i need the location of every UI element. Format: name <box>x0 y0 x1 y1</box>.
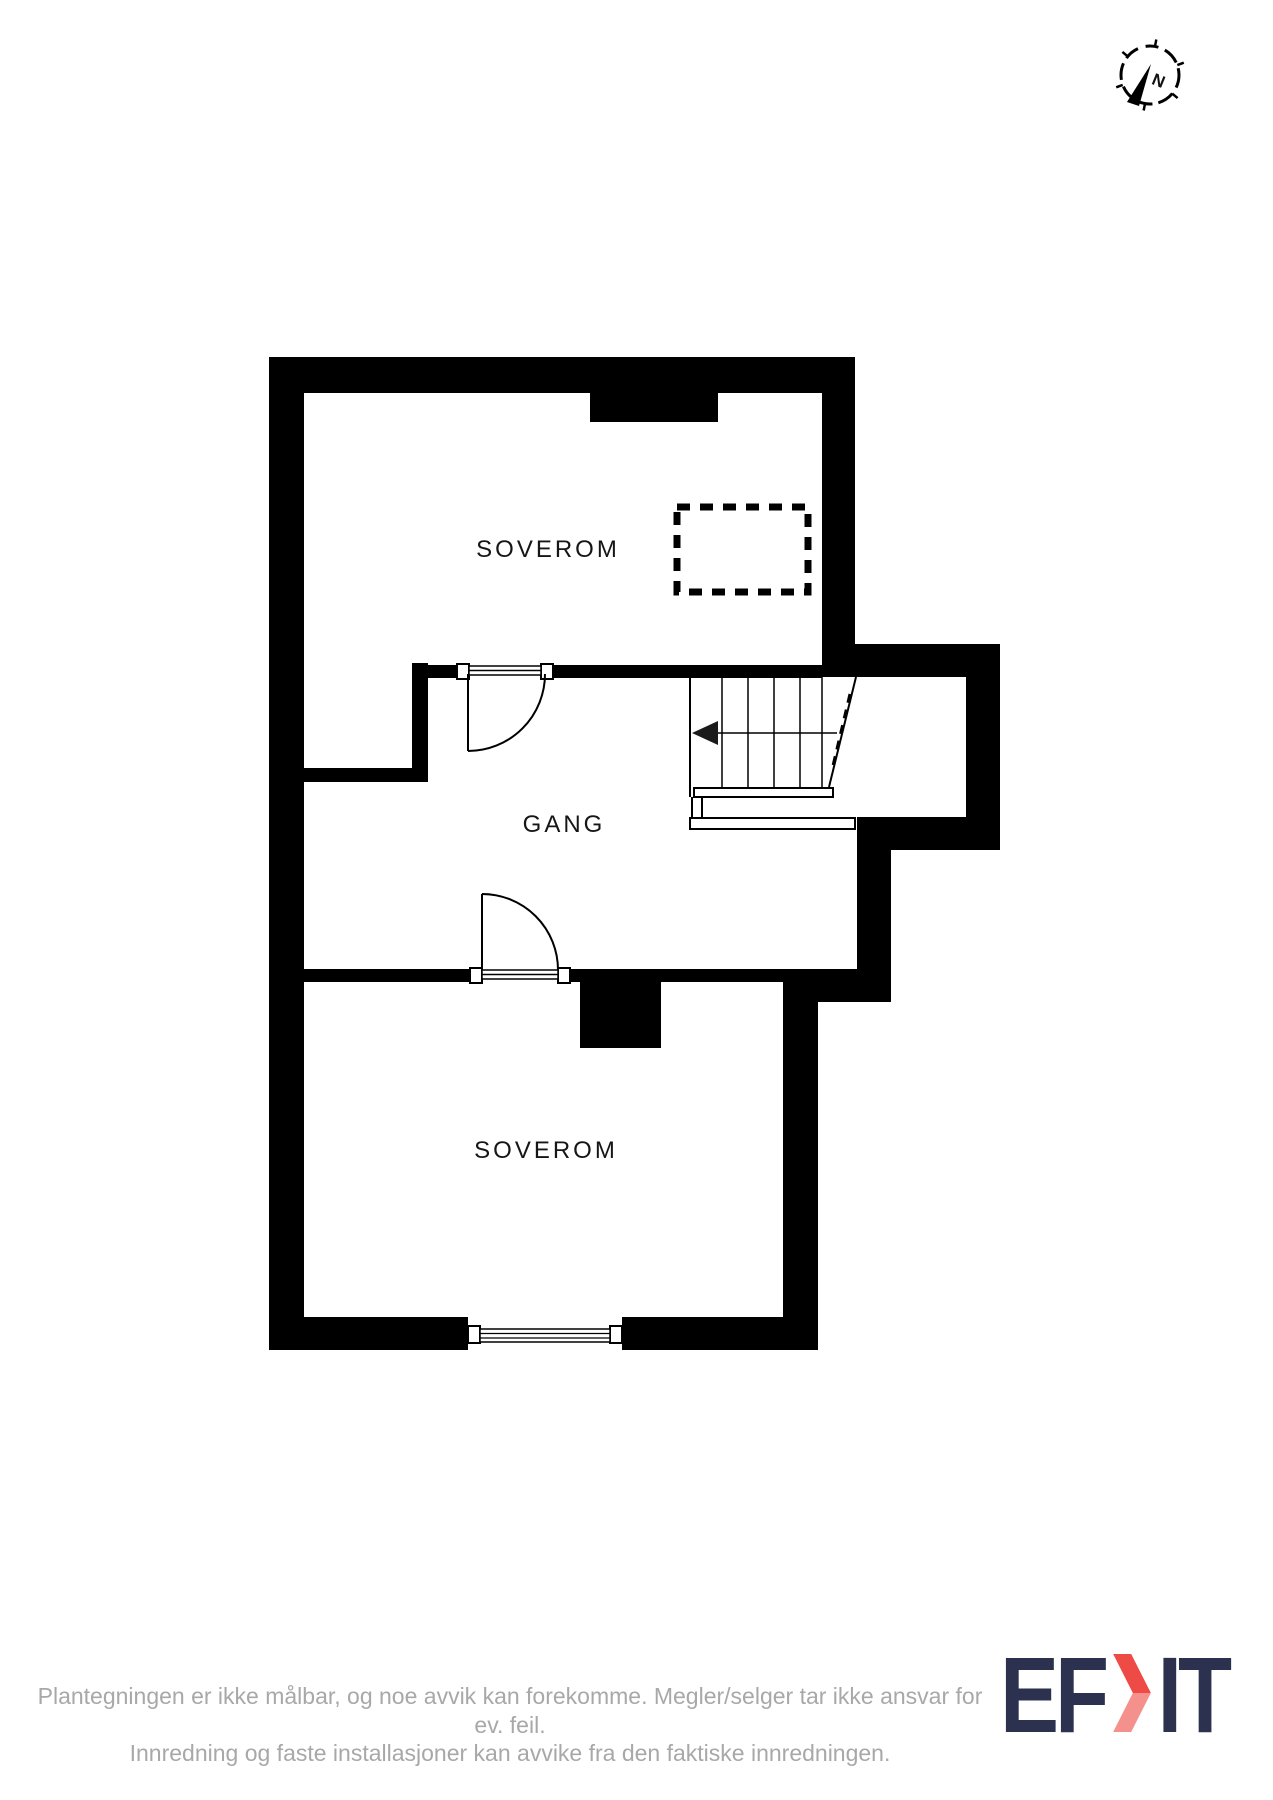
wall-gang-south-b <box>570 969 783 982</box>
wall-bottom-a <box>269 1317 468 1350</box>
wall-notch-bottom <box>580 982 661 1048</box>
door-bottom-bedroom <box>470 894 570 983</box>
wall-gang-north-a <box>412 665 457 678</box>
door-jamb <box>470 968 482 983</box>
room-label-soverom-bottom: SOVEROM <box>436 1137 656 1165</box>
compass-north-icon: N <box>1112 37 1188 113</box>
stair-direction-arrow-icon <box>692 721 718 745</box>
wall-lobe-horizontal <box>304 768 428 782</box>
door-jamb <box>541 664 553 679</box>
wall-right-top-room <box>822 357 855 677</box>
logo-text-right: IT <box>1157 1634 1228 1755</box>
stair-landing-bar <box>694 788 833 797</box>
floor-plan-page: SOVEROM GANG SOVEROM N Plantegningen er … <box>0 0 1273 1800</box>
door-swing-arc <box>482 894 558 970</box>
dashed-void-symbol <box>677 507 808 592</box>
door-swing-arc <box>468 674 545 751</box>
footer-disclaimer: Plantegningen er ikke målbar, og noe avv… <box>20 1682 1000 1768</box>
wall-gang-south-a <box>304 969 470 982</box>
walls <box>269 357 1000 1350</box>
wall-bottom-b <box>622 1317 818 1350</box>
logo-text-left: EF <box>1000 1634 1105 1755</box>
wall-notch-top <box>590 393 718 422</box>
compass-ticks <box>1116 40 1184 111</box>
wall-lobe-vertical <box>412 663 428 782</box>
compass-north-label: N <box>1149 70 1168 92</box>
footer-disclaimer-line2: Innredning og faste installasjoner kan a… <box>20 1739 1000 1768</box>
door-top-bedroom <box>457 664 553 751</box>
staircase <box>690 677 856 829</box>
wall-gang-north-b <box>553 665 822 678</box>
wall-inner-east <box>857 817 891 970</box>
floor-plan-drawing <box>0 0 1273 1800</box>
window-glazing <box>480 1329 610 1342</box>
stair-cut-line-dashed <box>832 694 850 770</box>
door-jamb <box>558 968 570 983</box>
efkt-logo: EF IT <box>1000 1641 1228 1749</box>
wall-top <box>269 357 855 393</box>
footer-disclaimer-line1: Plantegningen er ikke målbar, og noe avv… <box>20 1682 1000 1739</box>
chevron-right-icon <box>1113 1654 1151 1732</box>
wall-left <box>269 357 304 1350</box>
window-jamb <box>468 1326 480 1343</box>
wall-se-block <box>783 969 891 1002</box>
stair-landing-bar <box>690 818 855 829</box>
wall-right-bottom-room <box>783 1002 818 1350</box>
room-label-gang: GANG <box>454 811 674 839</box>
room-label-soverom-top: SOVEROM <box>438 536 658 564</box>
window-bottom <box>468 1326 622 1343</box>
compass-ring <box>1121 46 1179 104</box>
compass-needle <box>1127 64 1151 106</box>
window-jamb <box>610 1326 622 1343</box>
